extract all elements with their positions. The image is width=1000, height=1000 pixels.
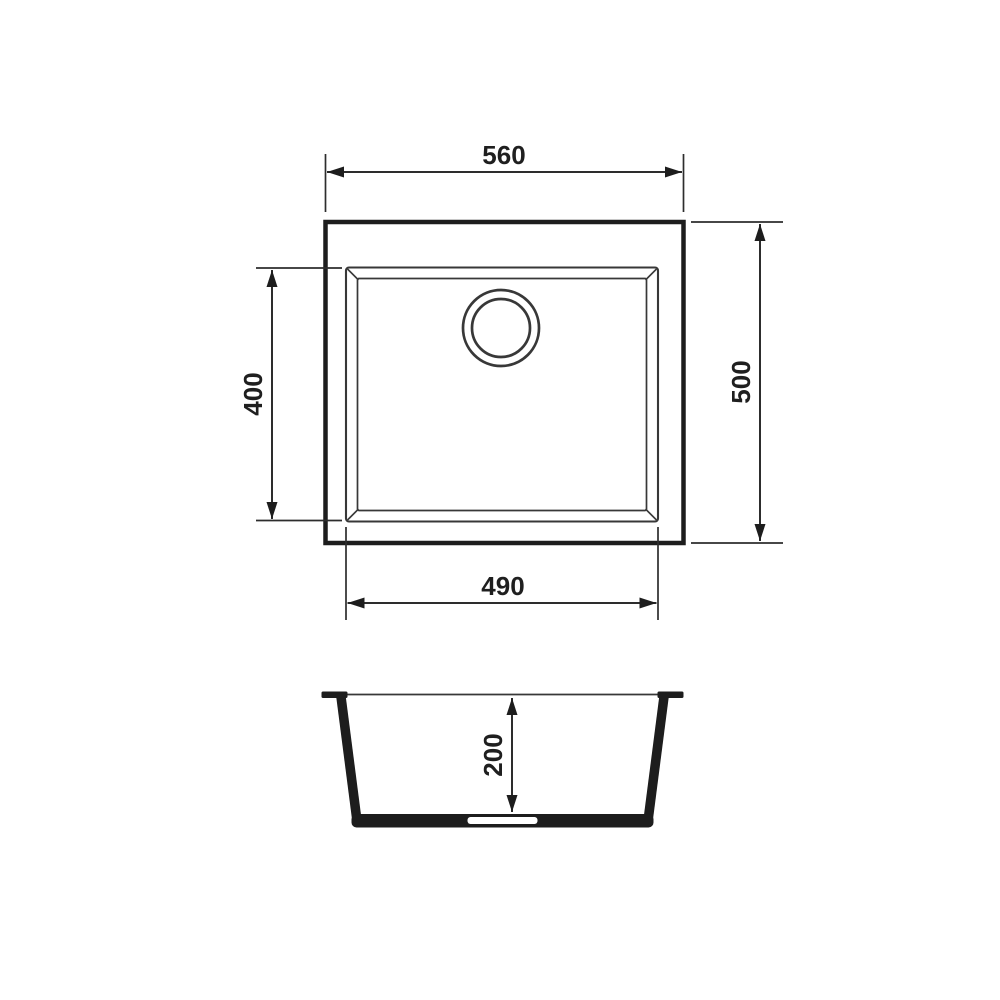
- bowl-inner-edge: [358, 279, 647, 511]
- bowl-right-wall: [649, 693, 665, 817]
- arrowhead-down-icon: [755, 524, 766, 541]
- arrowhead-down-icon: [507, 795, 518, 812]
- dim-overall-depth: 500: [691, 222, 783, 543]
- bowl-outer-edge: [346, 268, 658, 522]
- dim-label-overall-depth: 500: [726, 360, 756, 403]
- drain-outlet-slot: [468, 817, 538, 824]
- dim-label-bowl-depth: 400: [238, 372, 268, 415]
- arrowhead-left-icon: [327, 167, 344, 178]
- arrowhead-down-icon: [267, 502, 278, 519]
- bowl-left-wall: [341, 693, 357, 817]
- arrowhead-right-icon: [665, 167, 682, 178]
- dim-label-bowl-width: 490: [481, 571, 524, 601]
- dim-label-bowl-height: 200: [478, 733, 508, 776]
- arrowhead-up-icon: [507, 698, 518, 715]
- plan-view: [326, 222, 684, 543]
- drain-inner-circle: [472, 299, 530, 357]
- bevel-corner-top-right: [646, 269, 657, 280]
- dim-overall-width: 560: [326, 140, 684, 212]
- arrowhead-left-icon: [348, 598, 365, 609]
- technical-drawing-canvas: 560 500 400 490: [0, 0, 1000, 1000]
- dim-label-overall-width: 560: [482, 140, 525, 170]
- arrowhead-up-icon: [267, 270, 278, 287]
- bevel-corner-top-left: [348, 269, 359, 280]
- arrowhead-up-icon: [755, 224, 766, 241]
- bevel-corner-bottom-right: [646, 509, 657, 520]
- drain-outer-circle: [463, 290, 539, 366]
- sink-dimension-drawing: 560 500 400 490: [0, 0, 1000, 1000]
- arrowhead-right-icon: [640, 598, 657, 609]
- sink-outer-rim: [326, 222, 684, 543]
- dim-bowl-height: 200: [478, 698, 518, 812]
- bevel-corner-bottom-left: [348, 509, 359, 520]
